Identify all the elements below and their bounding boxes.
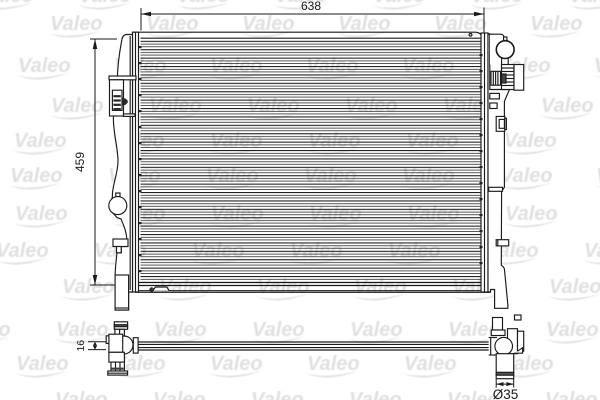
svg-text:16: 16 — [75, 340, 87, 352]
svg-text:638: 638 — [301, 0, 321, 13]
svg-text:459: 459 — [73, 152, 87, 172]
svg-text:Ø35: Ø35 — [493, 387, 519, 400]
